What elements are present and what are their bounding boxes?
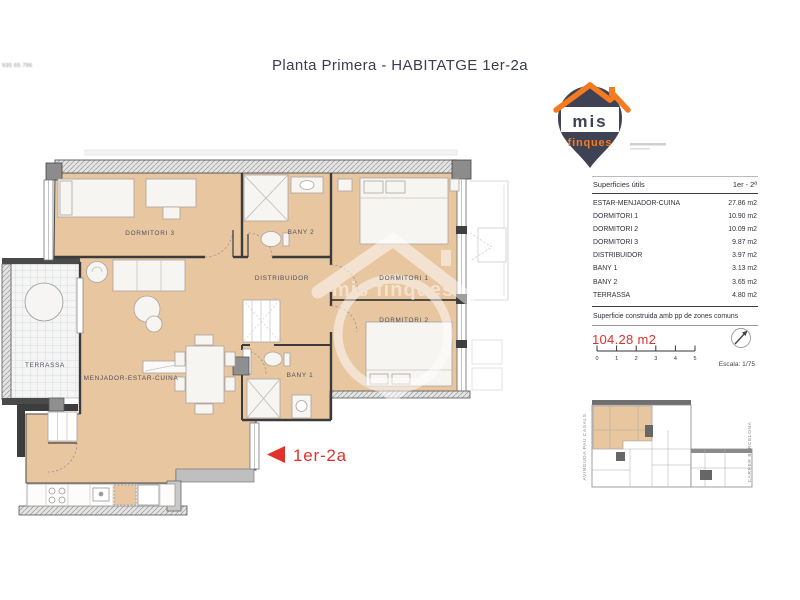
toilet-bany1 <box>264 352 290 366</box>
desk-dormitori3 <box>146 179 196 207</box>
terrace-door <box>77 278 83 333</box>
logo-text-finques: finques <box>568 137 613 149</box>
closet-distribuidor <box>243 300 280 342</box>
scale-tick-1: 1 <box>615 356 618 362</box>
scale-tick-4: 4 <box>674 356 677 362</box>
street-label-right: CARRER BARCELONA <box>747 421 753 482</box>
table-row: ESTAR-MENJADOR-CUINA27.86 m2 <box>592 197 758 210</box>
nightstand-dormitori1-right <box>450 179 459 191</box>
room-label-dormitori2: DORMITORI 2 <box>379 317 428 324</box>
room-label-bany2: BANY 2 <box>288 229 315 236</box>
table-row: TERRASSA4.80 m2 <box>592 289 758 302</box>
appliance-dashed <box>114 485 136 505</box>
room-label-bany1: BANY 1 <box>287 372 314 379</box>
fridge <box>138 485 159 505</box>
marker-arrow-icon <box>267 446 285 463</box>
entry-closet <box>48 412 77 441</box>
table-row: BANY 13.13 m2 <box>592 262 758 275</box>
bed-dormitori1 <box>360 178 448 244</box>
room-label-dormitori3: DORMITORI 3 <box>125 230 174 237</box>
room-label-distribuidor: DISTRIBUIDOR <box>255 275 309 282</box>
table-row: DISTRIBUIDOR3.97 m2 <box>592 249 758 262</box>
kitchen-counter <box>27 484 175 506</box>
structural-column <box>49 398 64 411</box>
sink-bany2 <box>291 177 323 193</box>
built-area-value: 104.28 m2 <box>592 332 758 347</box>
toilet-bany2 <box>261 232 289 247</box>
illegible-contact-text <box>630 143 666 146</box>
chimney-icon <box>609 87 615 96</box>
built-area-label: Superficie construida amb pp de zones co… <box>592 307 758 326</box>
table-header: Superficies útils 1er - 2ª <box>592 176 758 194</box>
coffee-table-small <box>146 316 162 332</box>
table-row: DORMITORI 210.09 m2 <box>592 223 758 236</box>
sink-bany1 <box>292 395 311 418</box>
table-header-value: 1er - 2ª <box>733 180 757 189</box>
nightstand-dormitori3 <box>163 207 180 219</box>
watermark-text: mis finques <box>332 279 454 301</box>
sideboard-living <box>143 361 193 373</box>
terrace-table <box>25 283 63 321</box>
site-plan: AVINGUDA PAU CASALS CARRER BARCELONA <box>582 400 753 487</box>
terrace-area <box>2 258 80 405</box>
street-label-left: AVINGUDA PAU CASALS <box>582 414 588 481</box>
table-rows: ESTAR-MENJADOR-CUINA27.86 m2 DORMITORI 1… <box>592 194 758 307</box>
kitchen-sink <box>93 488 109 501</box>
armchair-living <box>87 262 108 283</box>
scale-label: Escala: 1/75 <box>719 361 756 368</box>
marker-label: 1er-2a <box>293 446 347 465</box>
nightstand-dormitori1-left <box>338 179 352 191</box>
area-table-panel: Superficies útils 1er - 2ª ESTAR-MENJADO… <box>592 176 758 347</box>
balcony-outline <box>470 181 508 390</box>
scale-tick-2: 2 <box>635 356 638 362</box>
scale-tick-3: 3 <box>654 356 657 362</box>
room-label-dormitori1: DORMITORI 1 <box>379 275 428 282</box>
table-row: BANY 23.65 m2 <box>592 276 758 289</box>
brand-logo: mis finques <box>556 85 666 168</box>
table-row: DORMITORI 110.90 m2 <box>592 210 758 223</box>
scale-tick-0: 0 <box>595 356 598 362</box>
table-row: DORMITORI 39.87 m2 <box>592 236 758 249</box>
bed-dormitori3 <box>58 179 134 217</box>
room-label-terrassa: TERRASSA <box>25 362 65 369</box>
bed-dormitori2 <box>366 322 452 386</box>
table-header-label: Superficies útils <box>593 180 645 189</box>
room-label-menjador: MENJADOR-ESTAR-CUINA <box>84 375 179 382</box>
unit-marker: 1er-2a <box>267 446 347 465</box>
logo-text-mis: mis <box>572 112 607 131</box>
scale-tick-5: 5 <box>693 356 696 362</box>
shower-bany2 <box>244 175 288 221</box>
shower-bany1 <box>247 379 280 418</box>
floor-plan-page: 935 65 796 Planta Primera - HABITATGE 1e… <box>0 0 800 600</box>
sofa-living <box>113 260 185 291</box>
